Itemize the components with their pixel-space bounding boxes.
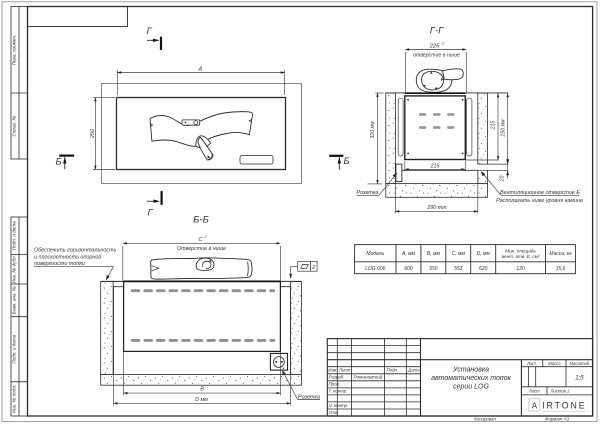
svg-text:Изм.: Изм. — [328, 368, 337, 373]
svg-text:Вентиляционное отверстие Е: Вентиляционное отверстие Е — [500, 190, 580, 196]
svg-text:автоматических топок: автоматических топок — [431, 375, 512, 382]
svg-text:Обеспечить горизонтальность: Обеспечить горизонтальность — [34, 248, 117, 254]
svg-text:Г-Г: Г-Г — [430, 26, 444, 37]
svg-text:Подп. и дата: Подп. и дата — [12, 221, 17, 250]
svg-text:Разраб.: Разраб. — [329, 375, 345, 380]
svg-text:Листов 1: Листов 1 — [550, 388, 570, 393]
svg-text:Располагать ниже уровня камина: Располагать ниже уровня камина — [496, 198, 583, 204]
svg-text:Розетка: Розетка — [357, 190, 379, 196]
svg-text:Романовский: Романовский — [354, 374, 383, 380]
svg-text:15,6: 15,6 — [556, 266, 566, 272]
svg-text:Взам. инв. №: Взам. инв. № — [12, 286, 17, 314]
svg-text:620: 620 — [479, 266, 488, 272]
svg-text:и плоскостность опорной: и плоскостность опорной — [34, 253, 101, 260]
svg-text:Подп. и дата: Подп. и дата — [12, 334, 17, 363]
svg-text:Г: Г — [147, 26, 153, 37]
svg-text:Лист: Лист — [528, 388, 540, 393]
svg-text:отверстие в нише: отверстие в нише — [413, 53, 460, 59]
svg-text:D мм: D мм — [195, 397, 208, 403]
svg-text:Б-Б: Б-Б — [193, 215, 209, 226]
svg-text:LOG 600: LOG 600 — [365, 266, 386, 272]
svg-text:серии LOG: серии LOG — [453, 384, 489, 391]
svg-text:С: С — [199, 237, 203, 243]
svg-text:Б: Б — [56, 157, 62, 168]
svg-text:-2: -2 — [203, 235, 206, 239]
svg-text:550: 550 — [429, 266, 438, 272]
svg-text:С, мм: С, мм — [452, 251, 466, 257]
svg-text:Мин. площадь: Мин. площадь — [505, 248, 536, 253]
svg-text:Копировал: Копировал — [474, 416, 496, 421]
svg-text:225: 225 — [429, 44, 440, 50]
svg-text:A: A — [532, 401, 538, 410]
svg-text:Пров.: Пров. — [329, 382, 341, 387]
svg-text:Масштаб: Масштаб — [570, 361, 590, 366]
svg-text:Инв. № дубл.: Инв. № дубл. — [12, 255, 17, 283]
svg-text:215: 215 — [491, 121, 497, 131]
svg-text:600: 600 — [404, 266, 413, 272]
svg-text:Г: Г — [148, 207, 154, 218]
svg-text:250: 250 — [90, 128, 96, 139]
svg-text:Установка: Установка — [452, 367, 489, 374]
svg-text:В, мм: В, мм — [427, 251, 441, 257]
svg-text:215: 215 — [430, 163, 440, 169]
svg-text:Утв.: Утв. — [329, 410, 339, 415]
svg-text:Розетка: Розетка — [298, 394, 320, 400]
svg-text:Формат А3: Формат А3 — [545, 416, 570, 421]
svg-text:320 мм: 320 мм — [370, 121, 376, 139]
svg-text:553: 553 — [454, 266, 463, 272]
svg-text:Модель: Модель — [366, 251, 384, 257]
svg-text:Масса: Масса — [548, 361, 561, 366]
svg-text:-2: -2 — [441, 41, 444, 45]
svg-text:Б: Б — [344, 156, 350, 167]
svg-text:20: 20 — [499, 176, 505, 183]
svg-text:А: А — [198, 66, 203, 72]
svg-text:Дата: Дата — [407, 368, 420, 373]
svg-text:Подп.: Подп. — [387, 368, 399, 373]
svg-text:Отверстие в нише: Отверстие в нише — [177, 246, 226, 252]
svg-text:Т. контр.: Т. контр. — [329, 389, 348, 394]
svg-text:1:5: 1:5 — [575, 375, 584, 382]
svg-text:вент. отв. Е, см²: вент. отв. Е, см² — [502, 254, 540, 259]
svg-text:Лист: Лист — [338, 368, 351, 373]
svg-text:290 min: 290 min — [426, 205, 446, 211]
svg-text:120: 120 — [516, 266, 525, 272]
svg-text:Лит.: Лит. — [526, 361, 537, 366]
svg-text:А, мм: А, мм — [401, 251, 416, 257]
svg-text:Н. контр.: Н. контр. — [329, 403, 349, 408]
svg-text:IRTONE: IRTONE — [542, 401, 586, 411]
svg-text:Справ. №: Справ. № — [12, 116, 17, 137]
svg-text:Перв. примен.: Перв. примен. — [12, 35, 17, 66]
svg-text:Инв. № подл.: Инв. № подл. — [12, 385, 17, 414]
svg-text:250 мм: 250 мм — [500, 119, 506, 138]
svg-text:D, мм: D, мм — [477, 251, 491, 257]
svg-text:В: В — [200, 387, 204, 393]
svg-text:Масса, кг: Масса, кг — [549, 251, 572, 257]
